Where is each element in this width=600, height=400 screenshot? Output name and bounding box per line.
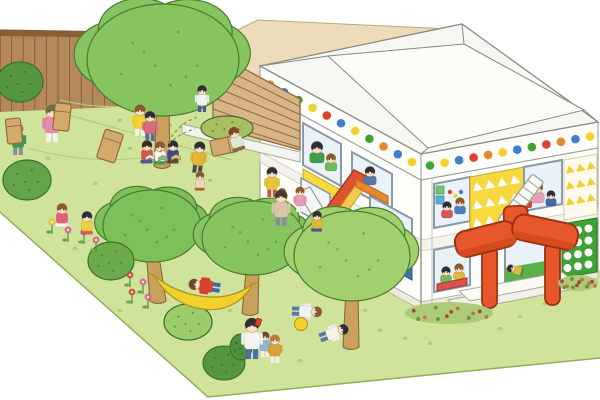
flower-bed-bloom [570, 277, 574, 281]
figure-body [270, 344, 281, 356]
bush-speckle [223, 128, 225, 130]
polka-dot [574, 250, 582, 258]
figure-win-c-kid-2 [453, 264, 464, 280]
figure-leg [53, 132, 58, 142]
flower-center [51, 221, 53, 223]
figure-eye [276, 340, 277, 341]
figure-eye [171, 146, 172, 147]
bush-speckle [177, 316, 179, 318]
figure-eye [448, 207, 449, 208]
fascia-dot [557, 137, 566, 146]
tree-leaf-speckle [160, 207, 163, 210]
figure-eye [198, 176, 199, 177]
bush-speckle [112, 269, 114, 271]
figure-win-b-kid-1 [546, 191, 557, 206]
figure-shoulders [546, 199, 557, 207]
polka-dot [585, 224, 593, 232]
polka-dot [585, 236, 593, 244]
figure-body [197, 94, 207, 105]
figure-eye [368, 172, 369, 173]
figure-win-a-kid-2 [454, 198, 465, 214]
flower-leaf [90, 248, 96, 251]
flower-bed-bloom [580, 278, 584, 282]
figure-eye [315, 216, 316, 217]
bush-speckle [10, 75, 12, 77]
bush-speckle [97, 265, 99, 267]
fascia-dot [571, 135, 580, 144]
figure-eye [88, 217, 89, 218]
bush-body [3, 160, 51, 200]
tree-leaf-speckle [362, 232, 365, 235]
flower-bed-bloom [560, 280, 564, 284]
tree-leaf-speckle [120, 73, 123, 76]
figure-eye [60, 209, 61, 210]
tree-leaf-speckle [336, 248, 339, 251]
bush [0, 62, 43, 102]
figure-slide-kid-mustard [311, 211, 322, 232]
bush [3, 160, 51, 200]
figure-shoulders [454, 206, 465, 214]
fascia-dot [440, 159, 449, 168]
window-decor-dot [459, 190, 463, 194]
figure-leg [46, 132, 51, 142]
figure-eye [263, 337, 264, 338]
flower-leaf [142, 305, 148, 308]
kindergarten-illustration [0, 0, 600, 400]
tree-leaf-speckle [173, 228, 176, 231]
figure-eye [458, 203, 459, 204]
sack-body [53, 103, 72, 132]
figure-eye [63, 209, 64, 210]
sack-body [5, 118, 23, 144]
figure-body [274, 202, 288, 218]
flower-bed-bloom [467, 316, 471, 320]
flower-bed-bloom [593, 284, 597, 288]
figure-eye [298, 192, 299, 193]
figure-eye [318, 148, 319, 149]
figure-chase-toddler [195, 172, 205, 191]
window-decor-dot [453, 194, 457, 198]
figure-eye [203, 90, 204, 91]
illustration-stage [0, 0, 600, 400]
polka-dot [574, 262, 582, 270]
yellow-ball [295, 318, 308, 331]
fascia-dot [484, 151, 493, 160]
figure-eye [138, 111, 139, 112]
figure-eye [151, 117, 152, 118]
flower-bed-bloom [562, 286, 566, 290]
flower-bed-bloom [412, 309, 416, 313]
bush-speckle [28, 189, 30, 191]
figure-body [299, 306, 312, 318]
bush-speckle [101, 254, 103, 256]
tree-leaf-speckle [124, 234, 127, 237]
bush-speckle [21, 91, 23, 93]
bush-speckle [212, 130, 214, 132]
figure-leg [275, 216, 280, 226]
entrance-pillar-right [545, 243, 560, 305]
flower-bed-bloom [575, 284, 579, 288]
flower-center [131, 291, 133, 293]
tree-leaf-speckle [257, 253, 260, 256]
bush-speckle [231, 121, 233, 123]
tree-leaf-speckle [196, 64, 199, 67]
flower-bed-bloom [434, 306, 438, 310]
tree-leaf-speckle [231, 226, 234, 229]
flower-bed-bloom [456, 307, 460, 311]
tree-leaf-speckle [177, 31, 180, 34]
bush-speckle [232, 364, 234, 366]
flower-center [129, 274, 131, 276]
tree-leaf-speckle [131, 42, 134, 45]
tree-leaf-speckle [247, 240, 250, 243]
figure-eye [158, 147, 159, 148]
figure-win-a-kid-1 [441, 202, 452, 218]
fascia-dot [513, 145, 522, 154]
fascia-dot [408, 158, 417, 167]
tree-leaf-speckle [156, 241, 159, 244]
figure-shoulders [325, 163, 337, 172]
bush-speckle [37, 181, 39, 183]
bush-body [201, 116, 253, 140]
flower-center [147, 296, 149, 298]
fascia-dot [351, 127, 360, 136]
figure-eye [145, 146, 146, 147]
flower-bed-bloom [471, 312, 475, 316]
fascia-dot [365, 134, 374, 143]
bush-speckle [6, 86, 8, 88]
bush-speckle [216, 123, 218, 125]
tree-leaf-speckle [184, 75, 187, 78]
figure-eye [161, 147, 162, 148]
figure-body [56, 213, 67, 223]
flower-center [95, 239, 97, 241]
fascia-dot [323, 111, 332, 120]
figure-reader-1 [140, 140, 152, 163]
figure-flower-girl [55, 203, 67, 226]
fascia-dot [337, 119, 346, 128]
figure-body [144, 121, 155, 134]
polka-dot [585, 260, 593, 268]
figure-eye [461, 203, 462, 204]
figure-eye [332, 159, 333, 160]
panel-square-blue [436, 196, 444, 204]
figure-eye [318, 216, 319, 217]
bush-speckle [221, 364, 223, 366]
paper-sack [5, 118, 23, 144]
figure-eye [49, 111, 50, 112]
bush-speckle [236, 342, 238, 344]
bush-speckle [211, 366, 213, 368]
tree-leaf-speckle [267, 248, 270, 251]
bush-speckle [185, 323, 187, 325]
bush-speckle [17, 83, 19, 85]
bush-speckle [215, 357, 217, 359]
figure-eye [148, 146, 149, 147]
tree-canopy-lobe [294, 211, 410, 301]
flower-bed-bloom [423, 316, 427, 320]
flower-leaf [126, 300, 132, 303]
tree-leaf-speckle [377, 259, 380, 262]
tree-leaf-speckle [356, 275, 359, 278]
figure-body [312, 219, 322, 228]
figure-body [266, 177, 277, 190]
bush-speckle [29, 83, 31, 85]
bush-speckle [174, 325, 176, 327]
figure-eye [85, 217, 86, 218]
entrance-pillar-left [482, 246, 497, 308]
tree-leaf-speckle [345, 259, 348, 262]
flower-leaf [78, 240, 84, 243]
figure-win-c-kid-1 [440, 267, 451, 283]
figure-shoulders [310, 153, 325, 164]
tree-leaf-speckle [169, 84, 172, 87]
bush [201, 116, 253, 140]
fascia-dot [308, 103, 317, 112]
flower-leaf [46, 230, 52, 233]
figure-body [195, 179, 204, 188]
figure-win-desk-boy [364, 166, 377, 185]
tree-leaf-speckle [275, 240, 278, 243]
tree-leaf-speckle [165, 235, 168, 238]
figure-eye [282, 197, 283, 198]
bush-speckle [192, 312, 194, 314]
paper-sack [53, 103, 72, 132]
fascia-dot [394, 150, 403, 159]
flower-leaf [137, 290, 143, 293]
bush-speckle [227, 353, 229, 355]
fascia-dot [379, 142, 388, 151]
figure-body [81, 221, 92, 231]
polka-dot [564, 264, 572, 272]
flower-bed-bloom [587, 282, 591, 286]
fascia-dot [426, 161, 435, 170]
bush-speckle [31, 169, 33, 171]
figure-reader-3 [166, 140, 178, 163]
tree-leaf-speckle [154, 64, 157, 67]
bush-speckle [241, 352, 243, 354]
figure-eye [148, 117, 149, 118]
figure-eye [371, 172, 372, 173]
tree-leaf-speckle [239, 231, 242, 234]
figure-eye [329, 159, 330, 160]
figure-leg [253, 348, 258, 359]
figure-eye [447, 272, 448, 273]
flower-bed-bloom [585, 285, 589, 289]
figure-eye [460, 269, 461, 270]
figure-body [198, 279, 213, 293]
figure-eye [201, 176, 202, 177]
figure-eye [200, 90, 201, 91]
figure-eye [314, 148, 315, 149]
figure-eye [552, 195, 553, 196]
bush-body [0, 62, 43, 102]
flower-bed-bloom [478, 309, 482, 313]
figure-flower-boy [80, 211, 92, 234]
tree-leaf-speckle [138, 219, 141, 222]
flower-bed-bloom [485, 315, 489, 319]
bush-speckle [16, 173, 18, 175]
bush-speckle [120, 262, 122, 264]
figure-eye [273, 173, 274, 174]
tree-leaf-speckle [319, 266, 322, 269]
flower-bed-bloom [436, 317, 440, 321]
bush-speckle [198, 323, 200, 325]
flower-center [142, 281, 144, 283]
bush-speckle [108, 262, 110, 264]
flower-bed [405, 302, 493, 324]
figure-win-left-boy [325, 153, 337, 171]
figure-eye [549, 195, 550, 196]
bush-speckle [239, 347, 241, 349]
bush-speckle [225, 370, 227, 372]
figure-body [295, 195, 305, 206]
figure-eye [273, 340, 274, 341]
flower-bed-bloom [416, 317, 420, 321]
flower-bed-bloom [571, 286, 575, 290]
figure-eye [278, 197, 279, 198]
bush-speckle [189, 330, 191, 332]
tree-leaf-speckle [143, 50, 146, 53]
figure-eye [270, 173, 271, 174]
bush-speckle [24, 181, 26, 183]
tree-leaf-speckle [146, 228, 149, 231]
flower-leaf [62, 238, 68, 241]
flower-bed-bloom [445, 314, 449, 318]
figure-body [192, 151, 205, 166]
flower-bed-bloom [449, 310, 453, 314]
fascia-dot [586, 132, 595, 141]
fascia-dot [528, 143, 537, 152]
figure-shoulders [441, 210, 452, 218]
figure-eye [445, 207, 446, 208]
flower-center [67, 229, 69, 231]
figure-leg [282, 216, 287, 226]
tree-leaf-speckle [262, 218, 265, 221]
polka-dot [585, 248, 593, 256]
window-decor-dot [448, 190, 452, 194]
tree-canopy-lobe [87, 4, 239, 116]
figure-eye [444, 272, 445, 273]
panel-square-green [436, 186, 444, 194]
figure-reader-2 [153, 141, 165, 164]
bush-speckle [234, 349, 236, 351]
figure-eye [457, 269, 458, 270]
fascia-dot [542, 140, 551, 149]
flower-bed-bloom [577, 280, 581, 284]
fascia-dot [455, 156, 464, 165]
tree-leaf-speckle [131, 214, 134, 217]
polka-dot [564, 252, 572, 260]
flower-leaf [124, 283, 130, 286]
figure-eye [254, 326, 255, 327]
figure-leg [246, 348, 251, 359]
bush-speckle [13, 184, 15, 186]
figure-body [244, 332, 260, 350]
figure-eye [141, 111, 142, 112]
tree-leaf-speckle [327, 241, 330, 244]
flower-bed [558, 275, 598, 291]
bush-speckle [115, 250, 117, 252]
figure-eye [301, 192, 302, 193]
figure-eye [249, 326, 250, 327]
tree-leaf-speckle [368, 268, 371, 271]
bush-speckle [24, 71, 26, 73]
fascia-dot [498, 148, 507, 157]
figure-eye [266, 337, 267, 338]
tree-leaf-speckle [224, 246, 227, 249]
figure-eye [174, 146, 175, 147]
fascia-dot [469, 153, 478, 162]
